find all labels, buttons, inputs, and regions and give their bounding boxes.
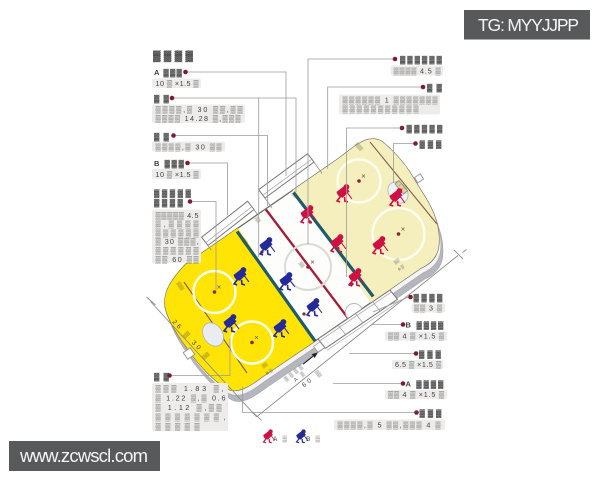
svg-text:▒▒▒▒,▒ 30 ▒▒: ▒▒▒▒,▒ 30 ▒▒ [156, 142, 222, 151]
svg-text:▒ 1.22 ▒,▒ 0.6: ▒ 1.22 ▒,▒ 0.6 [156, 393, 226, 402]
svg-text:▓▓▓: ▓▓▓ [419, 350, 442, 360]
svg-text:▒▒▒▒▒ 4.5: ▒▒▒▒▒ 4.5 [156, 211, 199, 220]
svg-text:▒▒ 4 ▒ ×1.5 ▒: ▒▒ 4 ▒ ×1.5 ▒ [388, 332, 444, 341]
svg-text:▓▓▓: ▓▓▓ [420, 140, 443, 150]
svg-text:TG: MYYJJPP: TG: MYYJJPP [478, 15, 579, 35]
svg-text:A ▓▓▓: A ▓▓▓ [154, 68, 183, 78]
svg-text:B ▓▓▓: B ▓▓▓ [154, 159, 185, 169]
svg-text:▒ 30 ▒▒▒,: ▒ 30 ▒▒▒, [156, 237, 199, 246]
svg-text:10 ▒ ×1.5 ▒: 10 ▒ ×1.5 ▒ [156, 79, 199, 88]
svg-text:▓▓▓▓▓▓: ▓▓▓▓▓▓ [400, 55, 443, 65]
svg-text:A ▒: A ▒ [273, 435, 287, 443]
svg-text:B ▒: B ▒ [306, 435, 320, 443]
svg-text:▒▒ 3 ▒: ▒▒ 3 ▒ [414, 304, 442, 313]
svg-text:▓▓▓: ▓▓▓ [420, 409, 443, 419]
svg-text:www.zcwscl.com: www.zcwscl.com [19, 445, 148, 466]
svg-text:▓▓▓▓: ▓▓▓▓ [154, 198, 184, 208]
svg-text:▒▒▒▒▒▒ 1 ▒▒▒▒▒▒▒: ▒▒▒▒▒▒ 1 ▒▒▒▒▒▒▒ [343, 95, 438, 104]
svg-text:▒▒▒▒ 4.5 ▒: ▒▒▒▒ 4.5 ▒ [394, 66, 441, 75]
svg-text:▒▒ 4 ▒ ×1.5 ▒: ▒▒ 4 ▒ ×1.5 ▒ [388, 390, 444, 399]
svg-text:10 ▒ ×1.5 ▒: 10 ▒ ×1.5 ▒ [156, 170, 199, 179]
svg-text:▒▒▒▒▒▒▒▒▒▒▒: ▒▒▒▒▒▒▒▒▒▒▒ [343, 105, 419, 114]
svg-text:6.5 ▒ ×1.5 ▒: 6.5 ▒ ×1.5 ▒ [395, 360, 441, 369]
svg-text:▓▓▓▓: ▓▓▓▓ [414, 293, 444, 303]
